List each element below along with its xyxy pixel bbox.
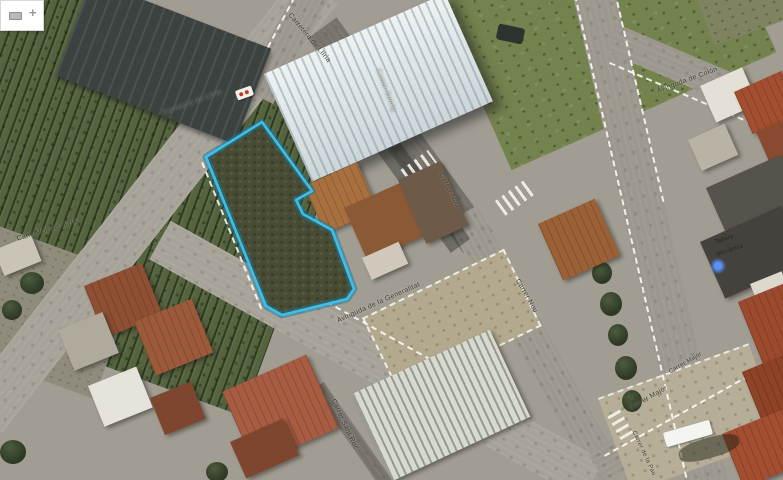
place-dot-marker[interactable] (710, 258, 726, 274)
layers-icon (9, 12, 22, 20)
poi-dot-icon (239, 92, 244, 97)
parcel-fill[interactable] (206, 122, 354, 315)
map-widget[interactable]: + (0, 0, 44, 31)
parcel-overlay (0, 0, 783, 480)
poi-dot-icon (244, 90, 249, 95)
satellite-map[interactable]: Carretera de Llíria Carretera de Llíria … (0, 0, 783, 480)
zoom-in-icon[interactable]: + (29, 5, 37, 20)
